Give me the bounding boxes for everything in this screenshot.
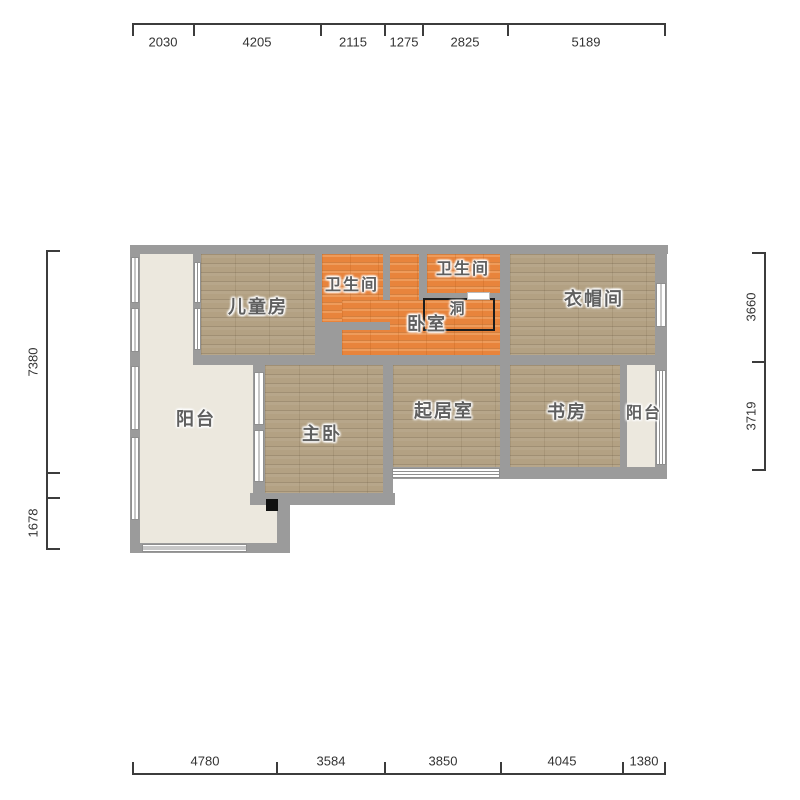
dim-bottom-tick-2 <box>384 762 386 775</box>
dim-bottom-tick-3 <box>500 762 502 775</box>
dim-left-value-0: 7380 <box>26 348 41 377</box>
dim-left-line <box>46 251 48 549</box>
dim-bottom-tick-5 <box>664 762 666 775</box>
dimension-annotations: 2030420521151275282551894780358438504045… <box>0 0 800 800</box>
dim-top-tick-0 <box>132 23 134 36</box>
dim-bottom-value-3: 4045 <box>548 754 577 769</box>
dim-top-value-5: 5189 <box>572 35 601 50</box>
dim-top-tick-6 <box>664 23 666 36</box>
dim-top-line <box>133 23 665 25</box>
dim-top-value-2: 2115 <box>339 35 367 50</box>
dim-bottom-value-4: 1380 <box>630 754 659 769</box>
dim-bottom-value-2: 3850 <box>429 754 458 769</box>
floor-plan-canvas: 儿童房卫生间卫生间卧室洞衣帽间阳台主卧起居室书房阳台 2030420521151… <box>0 0 800 800</box>
dim-left-tick-0 <box>46 250 60 252</box>
dim-top-tick-5 <box>507 23 509 36</box>
dim-right-tick-1 <box>752 361 766 363</box>
dim-top-value-0: 2030 <box>149 35 178 50</box>
dim-right-tick-0 <box>752 252 766 254</box>
dim-top-value-4: 2825 <box>451 35 480 50</box>
dim-top-tick-2 <box>320 23 322 36</box>
dim-top-tick-3 <box>384 23 386 36</box>
dim-top-value-3: 1275 <box>390 35 419 50</box>
dim-right-tick-2 <box>752 469 766 471</box>
dim-bottom-line <box>133 773 665 775</box>
dim-right-value-1: 3719 <box>744 402 759 431</box>
dim-top-value-1: 4205 <box>243 35 272 50</box>
dim-bottom-tick-4 <box>622 762 624 775</box>
dim-right-value-0: 3660 <box>744 293 759 322</box>
dim-left-tick-3 <box>46 548 60 550</box>
dim-bottom-tick-0 <box>132 762 134 775</box>
dim-left-tick-2 <box>46 497 60 499</box>
dim-left-value-1: 1678 <box>26 509 41 538</box>
dim-top-tick-1 <box>193 23 195 36</box>
dim-bottom-tick-1 <box>276 762 278 775</box>
dim-bottom-value-0: 4780 <box>191 754 220 769</box>
dim-left-tick-1 <box>46 472 60 474</box>
dim-bottom-value-1: 3584 <box>317 754 346 769</box>
dim-top-tick-4 <box>422 23 424 36</box>
